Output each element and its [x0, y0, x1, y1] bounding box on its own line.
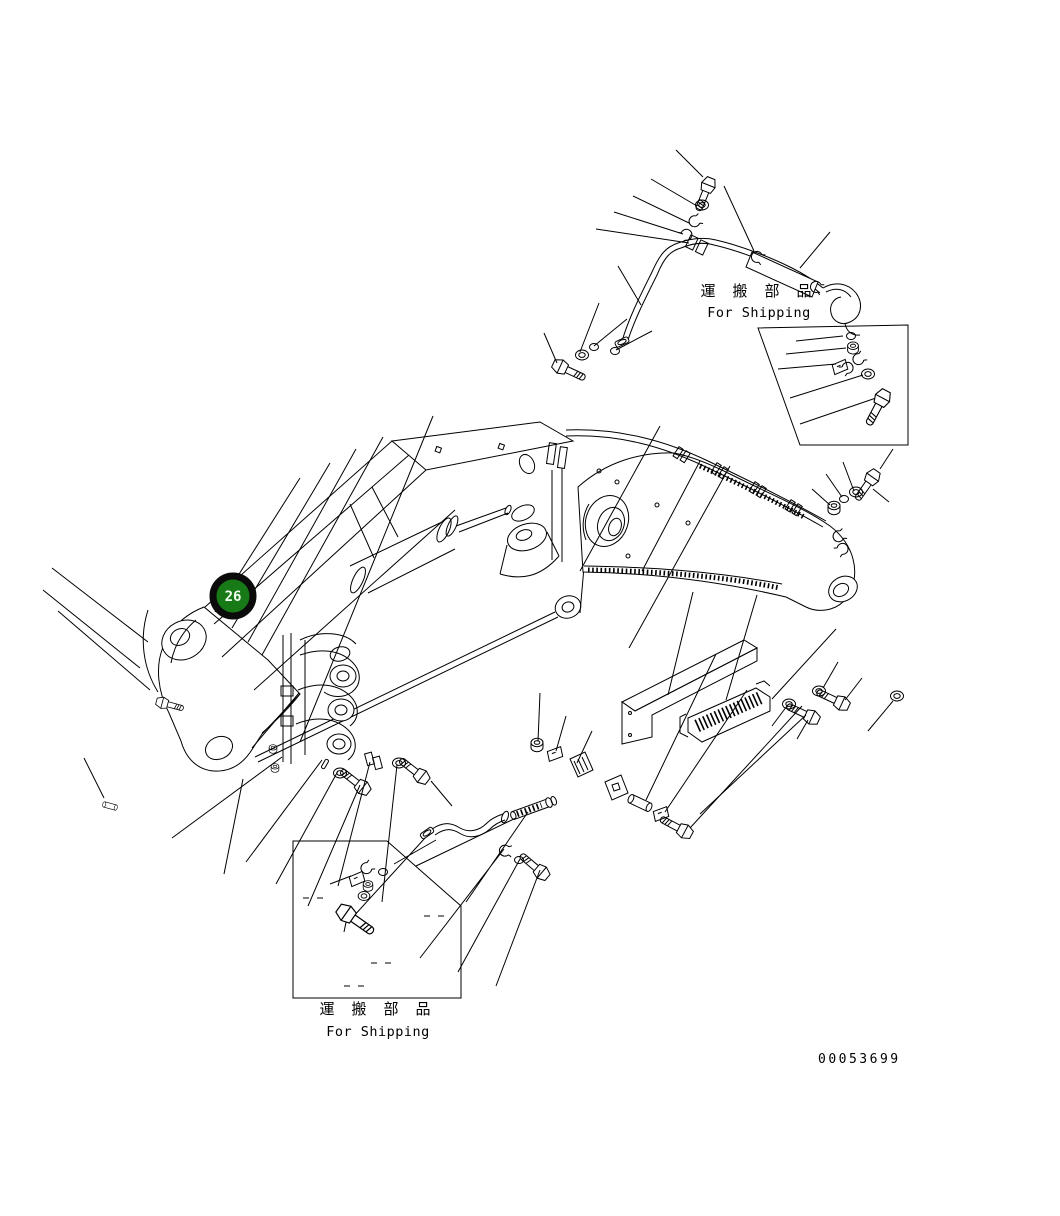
nut-part — [848, 342, 859, 354]
boom-foot — [143, 607, 300, 772]
hex-bolt-part — [516, 850, 552, 883]
o-ring-part — [379, 869, 388, 876]
pipe-clamp-part — [359, 859, 376, 875]
boom-assembly-drawing — [43, 150, 904, 986]
hex-bolt-part — [851, 467, 883, 504]
foot-nut-part — [271, 764, 279, 773]
upper-shipping-pipe — [550, 175, 860, 384]
pipe-clamp-part — [498, 844, 513, 857]
hydraulic-cylinder — [348, 504, 513, 594]
callout-balloon-26[interactable]: 26 — [213, 576, 253, 616]
hex-bolt-part — [657, 812, 694, 841]
washer-part — [891, 691, 904, 701]
hex-bolt-part — [691, 175, 717, 213]
hex-bolt-part — [396, 754, 432, 787]
hex-bolt-part — [334, 901, 378, 939]
nut-part — [828, 501, 840, 514]
spacer-part — [627, 794, 653, 813]
shipping-label-top-jp: 運 搬 部 品 — [700, 282, 815, 300]
boom-parts-figure: 運 搬 部 品 For Shipping 運 搬 部 品 For Shippin… — [0, 0, 1060, 1216]
callout-number: 26 — [225, 589, 242, 605]
o-ring-part — [590, 344, 599, 351]
pipe-flange-part — [420, 827, 435, 840]
washer-part — [862, 369, 875, 379]
center-bottom-hardware — [509, 738, 695, 841]
o-ring-part — [840, 496, 849, 503]
parts-diagram-page: 運 搬 部 品 For Shipping 運 搬 部 品 For Shippin… — [0, 0, 1060, 1216]
hex-bolt-part — [784, 699, 822, 727]
shipping-box-top-right — [758, 325, 908, 445]
pipe-clamp-part — [839, 360, 856, 376]
shipping-label-bottom-jp: 運 搬 部 品 — [319, 1000, 434, 1018]
pipe-clamp-part — [851, 350, 868, 366]
shipping-label-bottom-en: For Shipping — [326, 1024, 430, 1040]
shipping-box-top-leaders — [778, 336, 876, 424]
pipe-clamp-part — [687, 213, 703, 228]
bottom-right-hardware — [783, 685, 904, 727]
pipe-flange-part — [614, 336, 629, 347]
slotted-plate-part — [605, 775, 628, 800]
long-threaded-rod-part — [509, 795, 558, 821]
document-number: 00053699 — [818, 1052, 901, 1067]
washer-part — [576, 350, 589, 360]
nut-part — [531, 738, 543, 751]
foot-nut-part — [269, 745, 277, 754]
hex-bolt-part — [861, 387, 893, 428]
ribbed-bracket-part — [570, 752, 593, 777]
washer-part — [358, 892, 370, 901]
pin-part — [102, 801, 118, 810]
boom-pivot-bracket — [500, 468, 562, 577]
shipping-box-bottom-left — [293, 841, 461, 998]
nut-part — [363, 881, 373, 892]
clip-plate-part — [547, 747, 563, 762]
shipping-label-top-en: For Shipping — [707, 305, 811, 321]
